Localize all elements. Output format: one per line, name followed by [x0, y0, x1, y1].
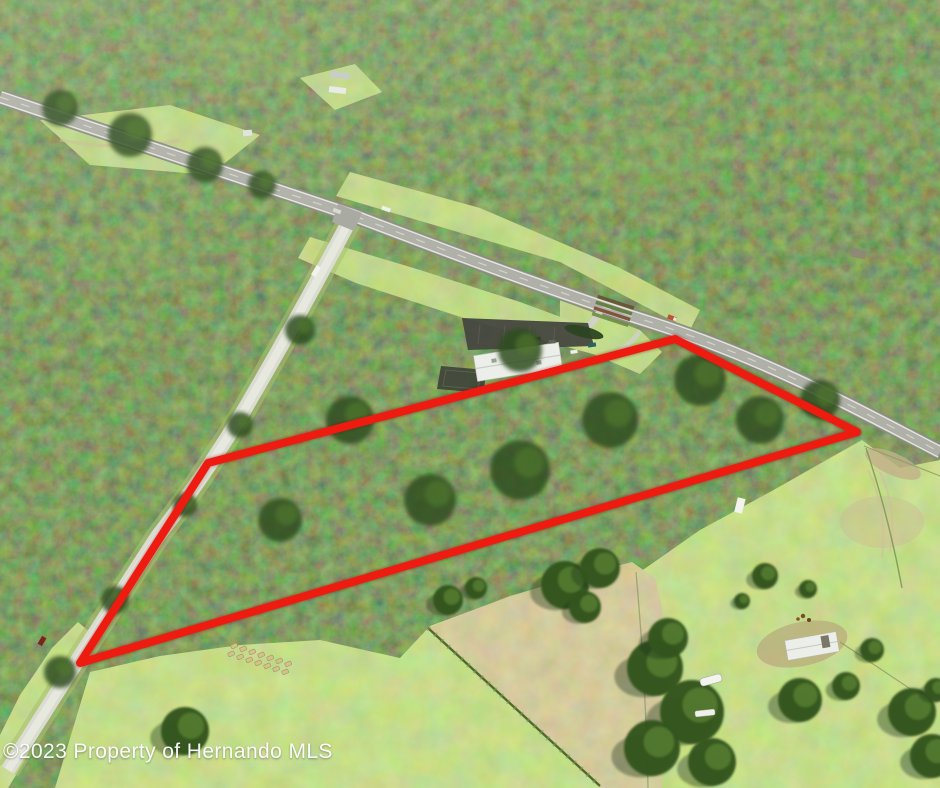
haze-overlay: [0, 0, 940, 788]
aerial-photo: ©2023 Property of Hernando MLS: [0, 0, 940, 788]
mls-watermark: ©2023 Property of Hernando MLS: [3, 740, 333, 764]
aerial-scene-svg: [0, 0, 940, 788]
